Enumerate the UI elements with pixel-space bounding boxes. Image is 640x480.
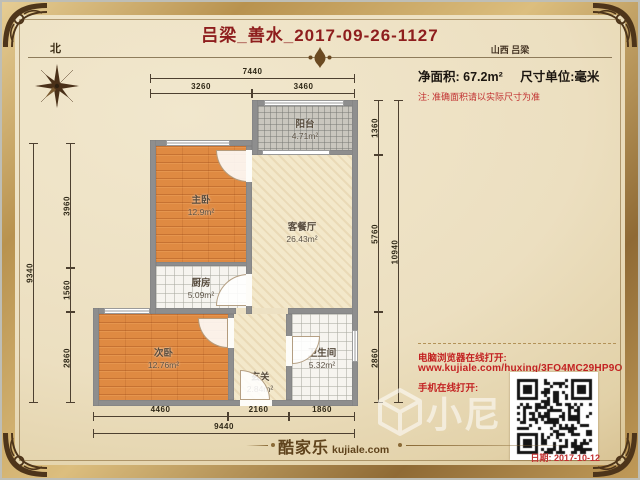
door-gap [286,336,292,366]
kujiale-logo: 酷家乐kujiale.com [278,434,389,458]
wall [252,100,258,155]
room-living-name: 客餐厅 [288,219,317,233]
room-balcony-area: 4.71m² [292,131,318,141]
room-master-name: 主卧 [191,192,210,206]
corner-flourish-icon [2,432,48,478]
dim-right-2: 5760 [378,155,379,312]
dim-top-left: 3260 [150,93,252,94]
door-gap [246,150,252,182]
wall [288,308,358,314]
wall [156,262,248,266]
date-label: 日期: 2017-10-12 [478,451,600,464]
room-living-area: 26.43m² [286,234,317,244]
wall [150,140,156,314]
net-area-label: 净面积: [418,70,460,84]
room-balcony: 阳台 4.71m² [258,106,352,150]
dim-left-1: 3960 [70,143,71,268]
balcony-slider-door [262,150,330,155]
room-bath-area: 5.32m² [309,360,335,370]
area-note: 注: 准确面积请以实际尺寸为准 [418,90,540,103]
fleur-ornament-icon [307,46,333,69]
corner-flourish-icon [592,2,638,48]
room-second-area: 12.76m² [148,360,179,370]
brand-cn: 酷家乐 [278,440,329,457]
corner-flourish-icon [592,432,638,478]
room-kitchen-name: 厨房 [191,275,210,289]
dim-right-3: 2860 [378,312,379,403]
dim-right-total: 10940 [398,100,399,403]
footer-deco-line [406,445,566,446]
dim-top-right: 3460 [252,93,355,94]
dim-top-total: 7440 [150,78,355,79]
room-balcony-name: 阳台 [295,116,314,130]
window-second [104,308,150,314]
dim-bottom-3: 1860 [289,416,355,417]
room-kitchen-area: 5.09m² [188,290,214,300]
unit-label: 尺寸单位:毫米 [520,70,599,84]
net-area-line: 净面积: 67.2m² 尺寸单位:毫米 [418,66,599,85]
footer-deco-dot [271,443,275,447]
footer-deco-dot [398,443,402,447]
pc-open-label: 电脑浏览器在线打开: [418,350,507,364]
wall [93,308,99,406]
window-balcony [264,100,344,106]
mobile-open-label: 手机在线打开: [418,380,478,394]
floorplan-poster: 吕梁_善水_2017-09-26-1127 山西 吕梁 北 净面积: 67.2m… [0,0,640,480]
dashed-separator [418,343,616,344]
footer-deco-line [246,445,268,446]
room-second-name: 次卧 [154,345,173,359]
brand-en: kujiale.com [332,444,389,456]
north-label: 北 [50,40,61,56]
room-master-area: 12.9m² [188,207,214,217]
door-gap [228,318,234,348]
corner-flourish-icon [2,2,48,48]
region-label: 山西 吕梁 [410,43,610,56]
window-master [166,140,230,146]
room-living: 客餐厅 26.43m² [252,155,352,308]
compass-rose-icon [34,63,80,109]
window-bathroom [352,330,358,362]
qr-code [510,372,598,460]
dim-left-total: 9340 [33,143,34,403]
dim-left-2: 1560 [70,268,71,312]
dim-bottom-2: 2160 [228,416,289,417]
dim-left-3: 2860 [70,312,71,403]
net-area-value: 67.2m² [463,70,503,84]
dim-right-1: 1360 [378,100,379,155]
door-gap [246,274,252,306]
dim-bottom-1: 4460 [93,416,228,417]
